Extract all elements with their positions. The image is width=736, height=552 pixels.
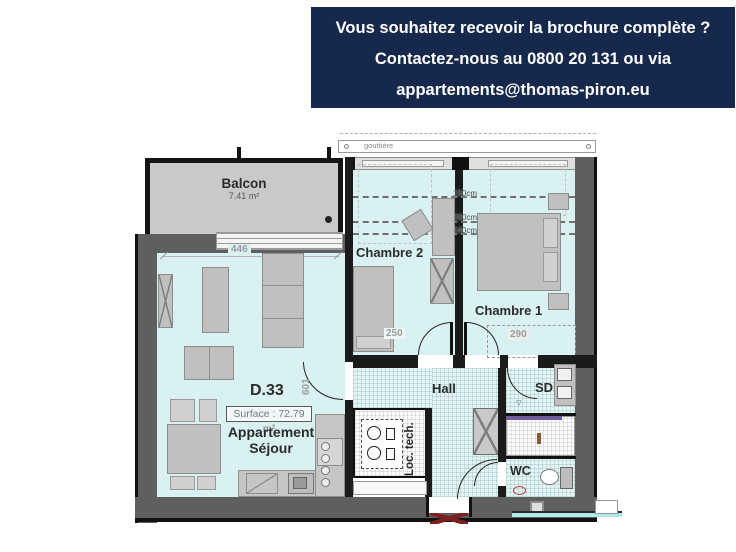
height-marker-240: 240cm: [453, 226, 477, 235]
wall-segment: [452, 157, 469, 170]
drainer-icon: [246, 473, 278, 494]
gutter-label: gouttière: [364, 141, 393, 150]
chair: [170, 399, 195, 422]
chambre2-label: Chambre 2: [356, 245, 423, 260]
entrance-marker-icon: [430, 513, 468, 524]
loctech-label: Loc. tech.: [404, 414, 416, 476]
entrance-opening: [428, 497, 470, 513]
chair: [197, 476, 216, 490]
chambre2-dim: 250: [384, 328, 405, 339]
hall-label: Hall: [432, 381, 456, 396]
toilet-tank-icon: [560, 467, 573, 489]
burner-icon: [321, 466, 330, 475]
appliance-outline: [361, 419, 403, 469]
sejour-name-line1: Appartement: [212, 424, 330, 440]
wall-left: [135, 234, 157, 523]
wardrobe: [430, 258, 454, 304]
threshold-arrow-icon: ▽: [516, 399, 521, 407]
balcony-area: 7.41 m²: [174, 191, 314, 201]
nightstand: [548, 193, 569, 210]
gutter-circle-icon: [586, 144, 591, 149]
wall-tick: [327, 147, 331, 158]
wardrobe-outline: [487, 325, 576, 358]
appliance-box-icon: [386, 428, 395, 440]
chambre1-dim: 290: [508, 329, 529, 340]
nightstand: [548, 293, 569, 310]
appliance-box-icon: [386, 448, 395, 460]
duct-shaft: [473, 408, 499, 455]
wall-edge: [426, 497, 429, 517]
wall-edge: [469, 497, 472, 517]
sofa-seam: [263, 285, 303, 286]
washbasin-icon: [557, 386, 572, 399]
sink-basin-icon: [293, 477, 307, 489]
chair: [199, 399, 217, 422]
floor-plan: gouttière Balcon 7.41 m² 150cm 200cm 240…: [0, 0, 736, 552]
balcony-label: Balcon: [174, 176, 314, 191]
sofa-seam: [263, 318, 303, 319]
shower-screen: [506, 416, 562, 420]
wall-segment: [345, 400, 353, 497]
wall-segment: [453, 355, 465, 368]
sejour-depth-dim: 601: [301, 355, 312, 395]
pillow: [543, 218, 558, 248]
coffee-table: [202, 267, 229, 333]
chambre1-label: Chambre 1: [475, 303, 542, 318]
dryer-icon: [367, 446, 381, 460]
wall-edge: [594, 157, 597, 497]
gutter-circle-icon: [344, 144, 349, 149]
wall-edge: [135, 518, 597, 522]
pillow: [543, 252, 558, 282]
sejour-width-dim: 446: [228, 244, 251, 255]
washer-icon: [367, 426, 381, 440]
sejour-name-line2: Séjour: [212, 440, 330, 456]
dimension-line: [163, 256, 339, 257]
loveseat-seam: [209, 347, 210, 379]
wall-tick: [237, 147, 241, 158]
burner-icon: [321, 478, 330, 487]
height-marker-150: 150cm: [453, 189, 477, 198]
wall-segment: [353, 355, 418, 368]
threshold: [353, 481, 427, 495]
sofa: [262, 253, 304, 348]
chair: [170, 476, 195, 490]
floor-drain-icon: [513, 486, 526, 495]
drain-dot-icon: [325, 216, 332, 223]
wall-edge: [135, 234, 138, 523]
sejour-name: Appartement Séjour: [212, 424, 330, 456]
door-leaf: [450, 322, 453, 355]
balcony-labels: Balcon 7.41 m²: [174, 176, 314, 201]
shower-faucet-icon: [537, 433, 541, 444]
unit-number: D.33: [250, 382, 284, 400]
corridor-step: [595, 500, 618, 514]
wall-segment: [498, 368, 506, 462]
height-marker-200: 200cm: [453, 213, 477, 222]
page: { "banner": { "bg": "#16294d", "lines": …: [0, 0, 736, 552]
tv-unit: [158, 274, 173, 328]
wall-segment: [345, 157, 353, 362]
wall-segment: [500, 355, 508, 368]
surface-box: Surface : 72.79 m²: [226, 406, 312, 422]
wall-segment: [498, 486, 506, 497]
desk: [432, 198, 455, 256]
toilet-bowl-icon: [540, 469, 559, 485]
door-leaf: [464, 322, 467, 355]
wc-label: WC: [510, 464, 531, 478]
gutter-dash-line: [340, 133, 596, 134]
washbasin-icon: [557, 368, 572, 381]
